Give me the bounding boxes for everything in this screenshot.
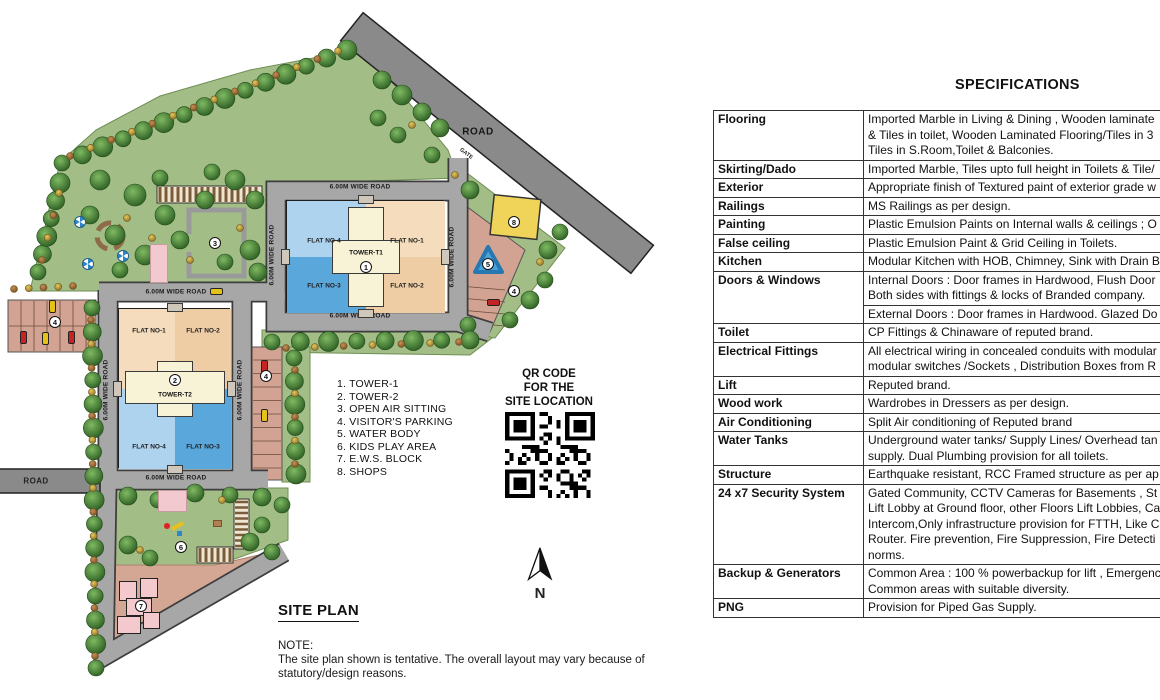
amenity-badge-4: 4 xyxy=(49,316,61,328)
spec-row: Skirting/DadoImported Marble, Tiles upto… xyxy=(714,160,1160,179)
shrub-icon xyxy=(237,225,244,232)
shrub-icon xyxy=(39,257,46,264)
spec-row: Air ConditioningSplit Air conditioning o… xyxy=(714,413,1160,432)
qr-code xyxy=(505,412,595,503)
spec-value-line: Common areas with suitable diversity. xyxy=(868,582,1160,598)
shrub-icon xyxy=(90,485,97,492)
spec-value: Internal Doors : Door frames in Hardwood… xyxy=(864,272,1160,324)
tree-icon xyxy=(112,262,128,278)
spec-value: Imported Marble in Living & Dining , Woo… xyxy=(864,111,1160,160)
tower-t2: FLAT NO-1FLAT NO-2FLAT NO-4FLAT NO-3TOWE… xyxy=(118,308,230,468)
spec-value: Gated Community, CCTV Cameras for Baseme… xyxy=(864,485,1160,565)
tree-icon xyxy=(85,372,101,388)
spec-value-block: MS Railings as per design. xyxy=(864,198,1160,216)
tree-icon xyxy=(237,82,253,98)
spec-value-line: norms. xyxy=(868,548,1160,564)
spec-value-block: Earthquake resistant, RCC Framed structu… xyxy=(864,466,1160,484)
ews-building xyxy=(143,612,160,629)
site-plan-terrain xyxy=(0,0,700,700)
shrub-icon xyxy=(452,172,459,179)
spec-value-line: Gated Community, CCTV Cameras for Baseme… xyxy=(868,486,1160,502)
amenity-badge-6: 6 xyxy=(175,541,187,553)
spec-row: ExteriorAppropriate finish of Textured p… xyxy=(714,178,1160,197)
tree-icon xyxy=(434,332,450,348)
spec-row: False ceilingPlastic Emulsion Paint & Gr… xyxy=(714,234,1160,253)
spec-value-line: Both sides with fittings & locks of Bran… xyxy=(868,288,1160,304)
spec-row: Water TanksUnderground water tanks/ Supp… xyxy=(714,431,1160,465)
shrub-icon xyxy=(90,509,97,516)
spec-label: Water Tanks xyxy=(714,432,864,465)
shrub-icon xyxy=(88,365,95,372)
tree-icon xyxy=(142,550,158,566)
tree-icon xyxy=(373,71,391,89)
car-icon xyxy=(261,409,268,422)
spec-label: False ceiling xyxy=(714,235,864,253)
tree-icon xyxy=(319,331,339,351)
spec-value-block: Provision for Piped Gas Supply. xyxy=(864,599,1160,617)
flat-label: FLAT NO-2 xyxy=(390,283,423,290)
flat-label: FLAT NO-3 xyxy=(307,283,340,290)
shrub-icon xyxy=(11,286,18,293)
tree-icon xyxy=(86,634,106,654)
tree-icon xyxy=(84,490,104,510)
road-width-label: 6.00M WIDE ROAD xyxy=(103,360,110,421)
spec-value: Wardrobes in Dressers as per design. xyxy=(864,395,1160,413)
site-plan-map: 6.00M WIDE ROAD6.00M WIDE ROAD6.00M WIDE… xyxy=(0,0,700,700)
tower-number-badge: 2 xyxy=(169,374,181,386)
shrub-icon xyxy=(293,64,300,71)
tree-icon xyxy=(155,205,175,225)
umbrella-icon xyxy=(117,250,129,262)
tree-icon xyxy=(88,660,104,676)
play-equipment-icon xyxy=(164,523,170,529)
tree-icon xyxy=(291,333,309,351)
shrub-icon xyxy=(311,344,318,351)
tree-icon xyxy=(264,544,280,560)
qr-code-image xyxy=(505,412,595,498)
spec-row: StructureEarthquake resistant, RCC Frame… xyxy=(714,465,1160,484)
tree-icon xyxy=(349,333,365,349)
spec-value-line: Modular Kitchen with HOB, Chimney, Sink … xyxy=(868,254,1160,270)
tree-icon xyxy=(287,420,303,436)
tree-icon xyxy=(376,332,394,350)
spec-label: Railings xyxy=(714,198,864,216)
spec-label: Doors & Windows xyxy=(714,272,864,324)
spec-value-line: Imported Marble in Living & Dining , Woo… xyxy=(868,112,1160,128)
spec-value-line: Imported Marble, Tiles upto full height … xyxy=(868,162,1160,178)
legend-item: 1. TOWER-1 xyxy=(337,378,453,391)
tree-icon xyxy=(87,588,103,604)
note-line: The site plan shown is tentative. The ov… xyxy=(278,653,668,667)
tree-icon xyxy=(257,73,275,91)
spec-value: MS Railings as per design. xyxy=(864,198,1160,216)
spec-label: Backup & Generators xyxy=(714,565,864,598)
flat-label: FLAT NO-2 xyxy=(186,328,219,335)
note-line: statutory/design reasons. xyxy=(278,667,668,681)
spec-row: Doors & WindowsInternal Doors : Door fra… xyxy=(714,271,1160,324)
tree-icon xyxy=(85,467,103,485)
spec-value-line: Split Air conditioning of Reputed brand xyxy=(868,415,1160,431)
shrub-icon xyxy=(292,437,299,444)
tree-icon xyxy=(253,488,271,506)
spec-row: ToiletCP Fittings & Chinaware of reputed… xyxy=(714,323,1160,342)
tree-icon xyxy=(287,442,305,460)
main-road-label: ROAD xyxy=(462,127,493,138)
pergola-kids-horizontal xyxy=(197,547,233,563)
road-width-label: 6.00M WIDE ROAD xyxy=(330,184,391,191)
spec-value: Common Area : 100 % powerbackup for lift… xyxy=(864,565,1160,598)
spec-value-line: Appropriate finish of Textured paint of … xyxy=(868,180,1160,196)
spec-value-block: Gated Community, CCTV Cameras for Baseme… xyxy=(864,485,1160,565)
spec-value-block: Imported Marble, Tiles upto full height … xyxy=(864,161,1160,179)
tree-icon xyxy=(286,350,302,366)
spec-value: Plastic Emulsion Paints on Internal wall… xyxy=(864,216,1160,234)
shrub-icon xyxy=(292,461,299,468)
shrub-icon xyxy=(89,437,96,444)
shrub-icon xyxy=(219,497,226,504)
tree-icon xyxy=(392,85,412,105)
spec-label: Toilet xyxy=(714,324,864,342)
tree-icon xyxy=(431,119,449,137)
shrub-icon xyxy=(292,390,299,397)
amenity-badge-7: 7 xyxy=(135,600,147,612)
spec-value-block: All electrical wiring in concealed condu… xyxy=(864,343,1160,376)
spec-value-block: Common Area : 100 % powerbackup for lift… xyxy=(864,565,1160,598)
ews-building xyxy=(140,578,158,598)
spec-value: Split Air conditioning of Reputed brand xyxy=(864,414,1160,432)
spec-row: FlooringImported Marble in Living & Dini… xyxy=(714,111,1160,160)
shrub-icon xyxy=(149,235,156,242)
tree-icon xyxy=(86,611,104,629)
tree-icon xyxy=(86,516,102,532)
shrub-icon xyxy=(170,112,177,119)
spec-value-line: Intercom,Only infrastructure provision f… xyxy=(868,517,1160,533)
spec-label: Electrical Fittings xyxy=(714,343,864,376)
umbrella-icon xyxy=(74,216,86,228)
road-width-label: 6.00M WIDE ROAD xyxy=(146,475,207,482)
spec-value-line: Common Area : 100 % powerbackup for lift… xyxy=(868,566,1160,582)
legend-item: 2. TOWER-2 xyxy=(337,391,453,404)
spec-row: PaintingPlastic Emulsion Paints on Inter… xyxy=(714,215,1160,234)
shrub-icon xyxy=(55,283,62,290)
spec-label: Lift xyxy=(714,377,864,395)
tree-icon xyxy=(204,164,220,180)
spec-value-line: MS Railings as per design. xyxy=(868,199,1160,215)
shrub-icon xyxy=(90,533,97,540)
spec-value-line: Earthquake resistant, RCC Framed structu… xyxy=(868,467,1160,483)
tree-icon xyxy=(552,224,568,240)
shrub-icon xyxy=(314,56,321,63)
tree-icon xyxy=(240,240,260,260)
spec-value-block: Underground water tanks/ Supply Lines/ O… xyxy=(864,432,1160,465)
shrub-icon xyxy=(427,340,434,347)
spec-value-block: Reputed brand. xyxy=(864,377,1160,395)
tree-icon xyxy=(539,241,557,259)
car-icon xyxy=(487,299,500,306)
spec-label: Painting xyxy=(714,216,864,234)
note-label: NOTE: xyxy=(278,639,668,653)
specifications-table: FlooringImported Marble in Living & Dini… xyxy=(713,110,1160,618)
amenity-badge-4: 4 xyxy=(260,370,272,382)
shrub-icon xyxy=(50,212,57,219)
tower-lobby-stub xyxy=(227,381,236,397)
north-label: N xyxy=(521,585,559,602)
spec-value-line: & Tiles in toilet, Wooden Laminated Floo… xyxy=(868,128,1160,144)
shrub-icon xyxy=(398,341,405,348)
legend-item: 8. SHOPS xyxy=(337,466,453,479)
tree-icon xyxy=(241,533,259,551)
shrub-icon xyxy=(283,345,290,352)
shrub-icon xyxy=(537,259,544,266)
spec-value: All electrical wiring in concealed condu… xyxy=(864,343,1160,376)
qr-caption: QR CODEFOR THESITE LOCATION xyxy=(496,367,602,409)
spec-value-block: CP Fittings & Chinaware of reputed brand… xyxy=(864,324,1160,342)
spec-label: Air Conditioning xyxy=(714,414,864,432)
spec-row: Backup & GeneratorsCommon Area : 100 % p… xyxy=(714,564,1160,598)
shrub-icon xyxy=(369,342,376,349)
tree-icon xyxy=(86,539,104,557)
shrub-icon xyxy=(108,136,115,143)
car-icon xyxy=(20,331,27,344)
tree-icon xyxy=(521,291,539,309)
spec-label: Wood work xyxy=(714,395,864,413)
spec-value-line: CP Fittings & Chinaware of reputed brand… xyxy=(868,325,1160,341)
shrub-icon xyxy=(25,285,32,292)
spec-value-block: Imported Marble in Living & Dining , Woo… xyxy=(864,111,1160,160)
tree-icon xyxy=(86,444,102,460)
spec-value-line: Wardrobes in Dressers as per design. xyxy=(868,396,1160,412)
tree-icon xyxy=(264,334,280,350)
spec-value-line: Reputed brand. xyxy=(868,378,1160,394)
tower-name: TOWER-T1 xyxy=(349,250,383,257)
spec-row: Wood workWardrobes in Dressers as per de… xyxy=(714,394,1160,413)
tower-number-badge: 1 xyxy=(360,261,372,273)
shrub-icon xyxy=(187,257,194,264)
tree-icon xyxy=(537,272,553,288)
shrub-icon xyxy=(40,284,47,291)
tree-icon xyxy=(124,184,146,206)
shrub-icon xyxy=(87,144,94,151)
spec-value-block: Modular Kitchen with HOB, Chimney, Sink … xyxy=(864,253,1160,271)
tower-lobby-stub xyxy=(358,309,374,318)
club-structure xyxy=(150,244,168,283)
legend-item: 7. E.W.S. BLOCK xyxy=(337,453,453,466)
flat-label: FLAT NO-4 xyxy=(132,444,165,451)
spec-value-block: Wardrobes in Dressers as per design. xyxy=(864,395,1160,413)
brochure-page: 6.00M WIDE ROAD6.00M WIDE ROAD6.00M WIDE… xyxy=(0,0,1160,700)
spec-value: Imported Marble, Tiles upto full height … xyxy=(864,161,1160,179)
spec-value-block: Split Air conditioning of Reputed brand xyxy=(864,414,1160,432)
shrub-icon xyxy=(252,80,259,87)
legend-item: 3. OPEN AIR SITTING xyxy=(337,403,453,416)
spec-label: Flooring xyxy=(714,111,864,160)
spec-value-line: modular switches /Sockets , Distribution… xyxy=(868,359,1160,375)
spec-label: Structure xyxy=(714,466,864,484)
amenity-badge-8: 8 xyxy=(508,216,520,228)
shrub-icon xyxy=(91,629,98,636)
spec-value-line: Lift Lobby at Ground floor, other Floors… xyxy=(868,501,1160,517)
flat-label: FLAT NO-1 xyxy=(390,238,423,245)
spec-value: Modular Kitchen with HOB, Chimney, Sink … xyxy=(864,253,1160,271)
flat-label: FLAT NO-4 xyxy=(307,238,340,245)
site-plan-note: NOTE: The site plan shown is tentative. … xyxy=(278,639,668,681)
tower-lobby-stub xyxy=(167,465,183,474)
tree-icon xyxy=(285,372,303,390)
tower-lobby-stub xyxy=(113,381,122,397)
tree-icon xyxy=(83,346,103,366)
spec-value: Earthquake resistant, RCC Framed structu… xyxy=(864,466,1160,484)
tree-icon xyxy=(119,536,137,554)
spec-row: LiftReputed brand. xyxy=(714,376,1160,395)
shrub-icon xyxy=(409,122,416,129)
spec-label: Kitchen xyxy=(714,253,864,271)
spec-label: 24 x7 Security System xyxy=(714,485,864,565)
spec-value-line: All electrical wiring in concealed condu… xyxy=(868,344,1160,360)
tree-icon xyxy=(370,110,386,126)
spec-value: Plastic Emulsion Paint & Grid Ceiling in… xyxy=(864,235,1160,253)
spec-value-block: Plastic Emulsion Paints on Internal wall… xyxy=(864,216,1160,234)
amenity-badge-5: 5 xyxy=(482,258,494,270)
tree-icon xyxy=(298,58,314,74)
tree-icon xyxy=(390,127,406,143)
shrub-icon xyxy=(56,190,63,197)
site-plan-heading: SITE PLAN xyxy=(278,602,359,622)
tree-icon xyxy=(83,323,101,341)
spec-value-block: Internal Doors : Door frames in Hardwood… xyxy=(864,272,1160,305)
tree-icon xyxy=(424,147,440,163)
specifications-heading: SPECIFICATIONS xyxy=(955,77,1080,93)
tower-name: TOWER-T2 xyxy=(158,392,192,399)
shrub-icon xyxy=(456,339,463,346)
car-icon xyxy=(210,288,223,295)
shrub-icon xyxy=(335,48,342,55)
play-seat-icon xyxy=(177,531,182,536)
shrub-icon xyxy=(89,461,96,468)
legend-item: 6. KIDS PLAY AREA xyxy=(337,441,453,454)
spec-row: 24 x7 Security SystemGated Community, CC… xyxy=(714,484,1160,565)
amenity-badge-4: 4 xyxy=(508,285,520,297)
spec-value-line: supply. Dual Plumbing provision for all … xyxy=(868,449,1160,465)
tree-icon xyxy=(246,191,264,209)
shrub-icon xyxy=(292,414,299,421)
tree-icon xyxy=(413,103,431,121)
spec-value: Underground water tanks/ Supply Lines/ O… xyxy=(864,432,1160,465)
shrub-icon xyxy=(340,343,347,350)
spec-value-line: External Doors : Door frames in Hardwood… xyxy=(868,307,1160,323)
road-width-label: 6.00M WIDE ROAD xyxy=(146,289,207,296)
spec-value-line: Underground water tanks/ Supply Lines/ O… xyxy=(868,433,1160,449)
shrub-icon xyxy=(231,88,238,95)
shrub-icon xyxy=(190,104,197,111)
spec-value-line: Internal Doors : Door frames in Hardwood… xyxy=(868,273,1160,289)
spec-label: Skirting/Dado xyxy=(714,161,864,179)
tree-icon xyxy=(254,517,270,533)
legend-item: 5. WATER BODY xyxy=(337,428,453,441)
tree-icon xyxy=(30,264,46,280)
road-width-label: 6.00M WIDE ROAD xyxy=(237,360,244,421)
shrub-icon xyxy=(88,389,95,396)
spec-row: Electrical FittingsAll electrical wiring… xyxy=(714,342,1160,376)
umbrella-icon xyxy=(82,258,94,270)
tree-icon xyxy=(152,170,168,186)
flat-label: FLAT NO-1 xyxy=(132,328,165,335)
tree-icon xyxy=(274,497,290,513)
tree-icon xyxy=(176,107,192,123)
spec-value-block: Plastic Emulsion Paint & Grid Ceiling in… xyxy=(864,235,1160,253)
tree-icon xyxy=(84,395,102,413)
shrub-icon xyxy=(44,234,51,241)
shrub-icon xyxy=(89,413,96,420)
tower-lobby-stub xyxy=(441,249,450,265)
spec-value-block: Appropriate finish of Textured paint of … xyxy=(864,179,1160,197)
tower-lobby-stub xyxy=(281,249,290,265)
spec-value-block: External Doors : Door frames in Hardwood… xyxy=(864,305,1160,324)
spec-value-line: Provision for Piped Gas Supply. xyxy=(868,600,1160,616)
road-stub-west xyxy=(0,469,100,493)
tree-icon xyxy=(84,300,100,316)
spec-row: KitchenModular Kitchen with HOB, Chimney… xyxy=(714,252,1160,271)
shrub-icon xyxy=(292,367,299,374)
tree-icon xyxy=(249,263,267,281)
tree-icon xyxy=(196,191,214,209)
ews-building xyxy=(117,616,141,634)
tower-lobby-stub xyxy=(167,303,183,312)
tree-icon xyxy=(225,170,245,190)
shrub-icon xyxy=(90,557,97,564)
spec-label: Exterior xyxy=(714,179,864,197)
spec-value: Appropriate finish of Textured paint of … xyxy=(864,179,1160,197)
tower-lobby-stub xyxy=(358,195,374,204)
tree-icon xyxy=(461,181,479,199)
site-plan-legend: 1. TOWER-12. TOWER-23. OPEN AIR SITTING4… xyxy=(337,378,453,478)
tree-icon xyxy=(217,254,233,270)
bench-icon xyxy=(213,520,222,527)
tree-icon xyxy=(403,331,423,351)
tree-icon xyxy=(186,484,204,502)
shrub-icon xyxy=(211,96,218,103)
tree-icon xyxy=(90,170,110,190)
shrub-icon xyxy=(70,283,77,290)
tree-icon xyxy=(85,562,105,582)
spec-value: Reputed brand. xyxy=(864,377,1160,395)
shrub-icon xyxy=(88,341,95,348)
spec-row: PNGProvision for Piped Gas Supply. xyxy=(714,598,1160,617)
tree-icon xyxy=(461,331,479,349)
tree-icon xyxy=(460,317,476,333)
shrub-icon xyxy=(273,72,280,79)
tree-icon xyxy=(285,394,305,414)
spec-value-line: Plastic Emulsion Paints on Internal wall… xyxy=(868,217,1160,233)
shrub-icon xyxy=(67,153,74,160)
spec-value-line: Router. Fire prevention, Fire Suppressio… xyxy=(868,532,1160,548)
shrub-icon xyxy=(149,120,156,127)
kids-structure xyxy=(158,490,187,512)
shrub-icon xyxy=(91,581,98,588)
car-icon xyxy=(42,332,49,345)
qr-caption-line: SITE LOCATION xyxy=(496,395,602,409)
spec-value: CP Fittings & Chinaware of reputed brand… xyxy=(864,324,1160,342)
legend-item: 4. VISITOR'S PARKING xyxy=(337,416,453,429)
tree-icon xyxy=(171,231,189,249)
shrub-icon xyxy=(128,128,135,135)
shrub-icon xyxy=(91,605,98,612)
west-road-label: ROAD xyxy=(23,477,48,486)
tree-icon xyxy=(83,418,103,438)
amenity-badge-3: 3 xyxy=(209,237,221,249)
tree-icon xyxy=(119,487,137,505)
qr-caption-line: FOR THE xyxy=(496,381,602,395)
shrub-icon xyxy=(137,547,144,554)
